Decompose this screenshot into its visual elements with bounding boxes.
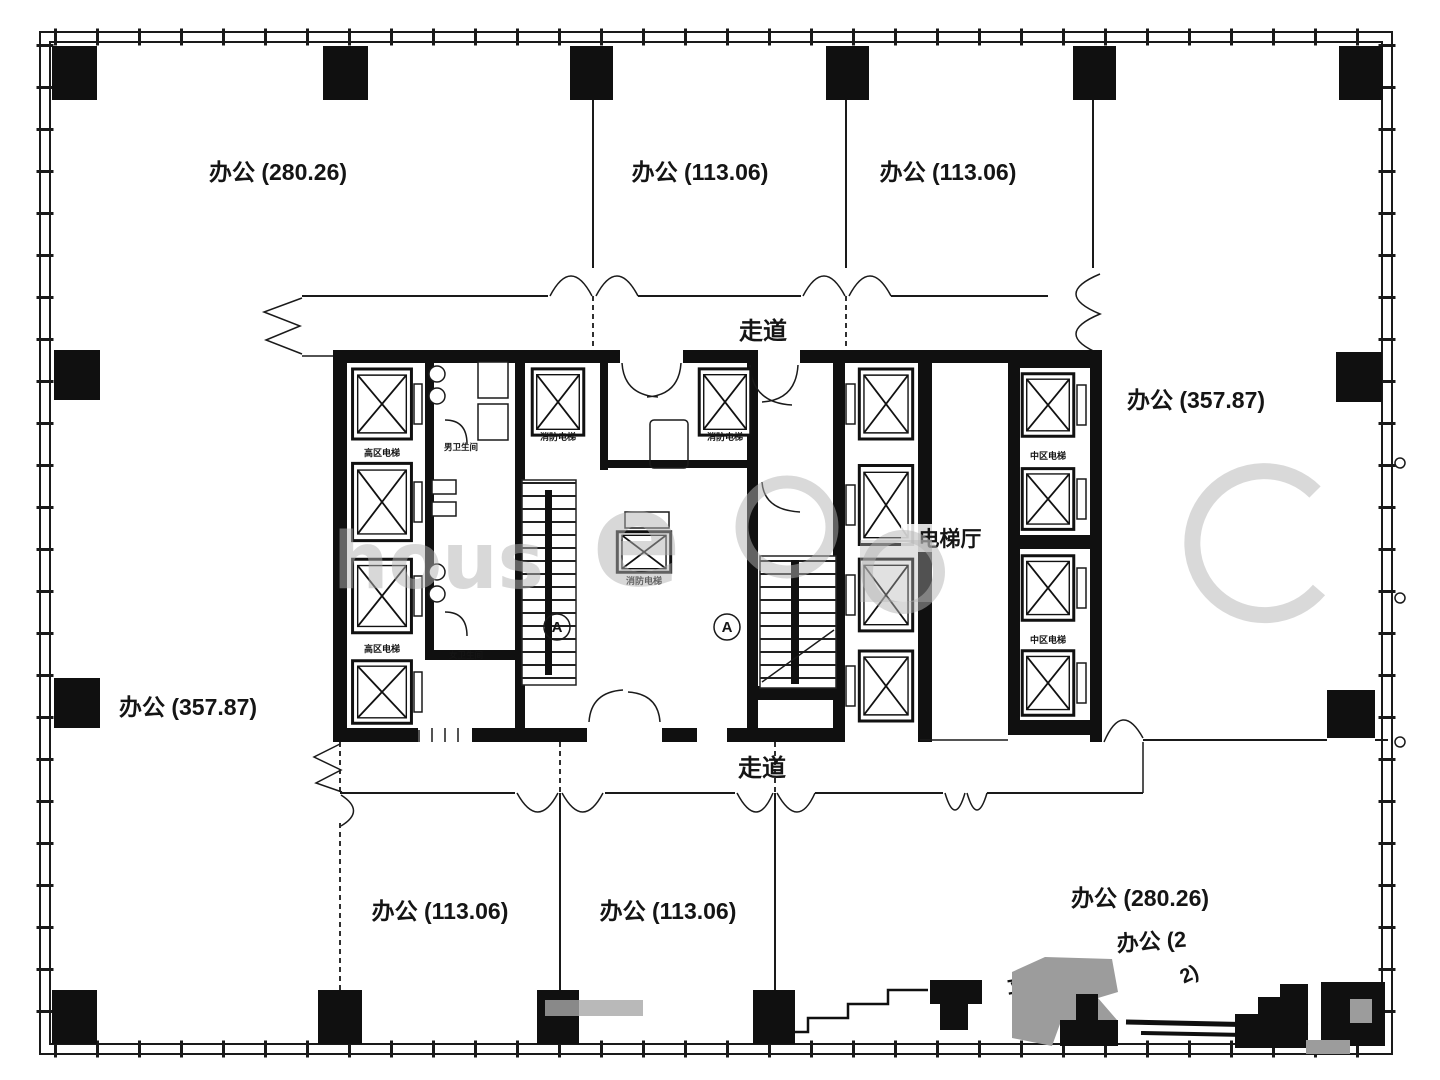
watermark-arc xyxy=(1192,471,1319,615)
watermark-text-2: e xyxy=(592,463,682,617)
urinal xyxy=(432,502,456,516)
glitch-block xyxy=(1060,1020,1118,1046)
elevator-car xyxy=(699,369,751,435)
high-zone-elevator-label: 高区电梯 xyxy=(364,447,400,458)
image-artifacts: 办公 (2 2) 立 xyxy=(545,927,1385,1054)
glitch-block xyxy=(1076,994,1098,1020)
elevator-car xyxy=(1022,556,1074,620)
door-swing-arc xyxy=(341,795,354,826)
elevator-car xyxy=(1022,374,1074,437)
mid-zone-elevator-label: 中区电梯 xyxy=(1030,634,1066,645)
glitch-steps xyxy=(1235,984,1308,1048)
mens-toilet-label: 男卫生间 xyxy=(444,442,478,452)
glitch-notch xyxy=(1350,999,1372,1023)
elevator-car xyxy=(353,369,412,439)
elevator-car xyxy=(859,369,912,439)
wash-basin xyxy=(429,366,445,382)
elevator-car xyxy=(1022,651,1074,715)
mid-zone-elevator-label: 中区电梯 xyxy=(1030,450,1066,461)
double-door-symbol xyxy=(945,793,987,810)
double-door-symbol xyxy=(314,744,342,792)
partial-room-label: 办公 (2 xyxy=(1116,927,1187,957)
watermark-text-1: hous xyxy=(333,517,544,607)
toilet-stall xyxy=(478,404,508,440)
toilet-stall xyxy=(478,362,508,398)
room-label-top-right: 办公 (113.06) xyxy=(880,159,1017,185)
partial-digits: 2) xyxy=(1177,961,1202,988)
door-swing-arc xyxy=(445,420,467,444)
elevator-car xyxy=(532,369,584,435)
stair-stringer xyxy=(545,490,552,675)
double-door-symbol xyxy=(264,298,302,354)
top-corridor xyxy=(264,274,1100,356)
room-label-top-left: 办公 (280.26) xyxy=(209,159,347,185)
stair-stringer xyxy=(791,560,799,684)
grid-mark-letter: A xyxy=(552,619,563,636)
room-label-right: 办公 (357.87) xyxy=(1127,387,1265,413)
glitch-tab xyxy=(1306,1040,1350,1054)
glitch-block xyxy=(940,1004,968,1030)
watermark-blob xyxy=(860,540,932,602)
room-label-bottom-mid: 办公 (113.06) xyxy=(600,898,737,924)
door-swing-arc xyxy=(445,612,467,636)
door-swing-arc xyxy=(622,363,681,397)
room-label-bottom-right: 办公 (280.26) xyxy=(1071,885,1209,911)
glitch-gray-strip xyxy=(545,1000,643,1016)
elevator-car xyxy=(1022,469,1074,530)
toilet-block: 男卫生间 女卫生间 xyxy=(429,362,508,660)
bottom-band-partitions xyxy=(340,793,775,990)
room-label-bottom-left: 办公 (113.06) xyxy=(372,898,509,924)
wash-basin xyxy=(429,388,445,404)
high-zone-elevator-label: 高区电梯 xyxy=(364,643,400,654)
corridor-label-bottom: 走道 xyxy=(738,754,786,782)
fire-elevator-label: 消防电梯 xyxy=(540,431,576,442)
urinal xyxy=(432,480,456,494)
grid-mark-letter: A xyxy=(722,619,733,636)
room-label-top-mid: 办公 (113.06) xyxy=(632,159,769,185)
room-label-left: 办公 (357.87) xyxy=(119,694,257,720)
womens-toilet-label: 女卫生间 xyxy=(449,650,483,660)
elevator-car xyxy=(353,661,412,724)
glitch-block xyxy=(930,980,982,1004)
floor-plan-canvas: 高区电梯 高区电梯 男卫生间 女卫生间 消防电梯 消防电梯 消防电梯 A A xyxy=(0,0,1440,1080)
elevator-car xyxy=(859,651,912,721)
double-door-symbol xyxy=(550,276,638,296)
double-door-symbol xyxy=(803,276,891,296)
door-swing-arc xyxy=(589,690,660,722)
double-door-symbol xyxy=(1076,274,1100,354)
door-swing-arc xyxy=(1104,720,1143,742)
fire-elevator-label: 消防电梯 xyxy=(707,431,743,442)
corridor-label-top: 走道 xyxy=(739,317,787,345)
top-band-partitions xyxy=(593,100,1093,350)
